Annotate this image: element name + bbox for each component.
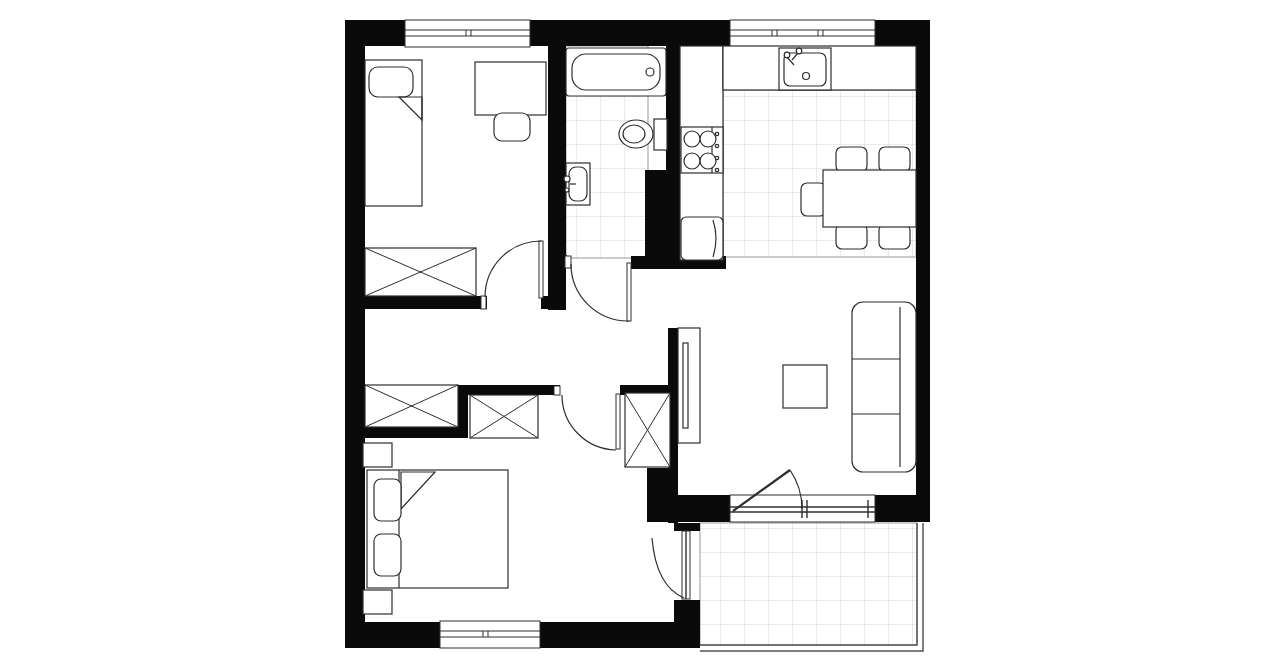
window-frame [440,621,540,648]
hallway-furniture [365,385,458,427]
bed-pillow [374,479,401,521]
dining-table [823,170,916,227]
door-swing-arc [652,538,684,598]
stove-knob [715,132,718,135]
dining-chair [879,147,910,172]
faucet-knob [796,48,802,54]
wall-balcony-jamb-top [674,523,700,531]
nightstand-top [363,443,392,467]
fridge-body [681,217,723,260]
living-room-furniture [678,302,916,472]
wall-bath-kitchen-upper [666,46,680,172]
wardrobe-hallway [365,385,458,427]
desk-chair [494,113,530,141]
bedroom1-furniture [365,60,546,296]
wall-bottom-left [345,622,440,648]
bathtub-drain [646,68,654,76]
door-bathroom [565,256,631,321]
door-swing-arc [571,264,629,321]
tv-cabinet [678,328,700,443]
sofa [852,302,916,472]
bathroom-sink [564,163,590,205]
wall-living-bottom-right [875,495,930,522]
bed-pillow [374,534,401,576]
wall-bedroom1-bottom [365,296,487,309]
door-bedroom2 [554,386,620,450]
single-bed [365,60,422,206]
wall-balcony-jamb-bottom [674,600,700,648]
door-jamb-cap [565,256,571,268]
desk [475,62,546,115]
bathtub [566,48,666,96]
wall-bathroom-bottom [548,255,567,268]
desk-and-chair [475,62,546,141]
door-balcony-living [730,470,875,522]
wall-left [345,20,365,648]
bed-pillow [369,67,413,97]
burner [684,131,700,147]
fridge [681,217,723,260]
double-bed [367,470,508,588]
burner [700,153,716,169]
burner [684,153,700,169]
wall-bathroom-left [548,46,566,310]
window-bedroom2 [440,621,540,648]
stove-knob [715,168,718,171]
window-frame [405,20,530,47]
sofa-outline [852,302,916,472]
door-leaf [627,263,631,321]
dining-chair [801,183,826,216]
burner [700,131,716,147]
stove [681,127,723,173]
dining-chair [879,224,910,249]
stove-knob [715,144,718,147]
wall-bedroom2-right [647,468,670,495]
wall-living-bottom-left [647,495,730,522]
dining-chair [836,224,867,249]
stove-knob [715,156,718,159]
toilet [619,119,667,150]
window-frame [730,20,875,47]
sink-faucet [564,176,570,182]
balcony-tile-floor [700,523,917,645]
door-swing-arc [485,241,541,297]
faucet-knob [784,52,790,58]
window-bedroom1 [405,20,530,47]
tv-screen [683,343,688,428]
window-kitchen [730,20,875,47]
floor-plan [0,0,1280,667]
nightstand-bottom [363,590,392,614]
coffee-table [783,365,827,408]
wall-hall-closet-bottom [365,427,468,438]
wardrobe-bedroom2-right [625,393,670,467]
sink-faucet-handle [565,188,569,192]
door-leaf [616,394,620,449]
dining-chair [836,147,867,172]
sink-drain [803,73,810,80]
wall-right [916,20,930,522]
floor-plan-svg [0,0,1280,667]
wall-bedroom2-top-left [463,385,560,395]
toilet-bowl-inner [623,125,645,143]
plan-root [345,20,930,651]
door-balcony-bedroom2 [652,531,690,599]
wall-bath-kitchen-lower [645,170,680,260]
door-swing-arc [562,395,616,450]
wall-top-middle [530,20,730,46]
kitchen-sink [779,48,831,90]
door-leaf [539,241,543,298]
wardrobe-bedroom2-top [470,395,538,438]
toilet-tank [654,119,667,150]
door-jamb-cap [554,386,560,395]
tv-unit [678,328,700,443]
door-jamb-cap [481,296,486,309]
wardrobe-bedroom1 [365,248,476,296]
sink-inner [784,53,826,86]
door-bedroom1 [481,241,543,309]
